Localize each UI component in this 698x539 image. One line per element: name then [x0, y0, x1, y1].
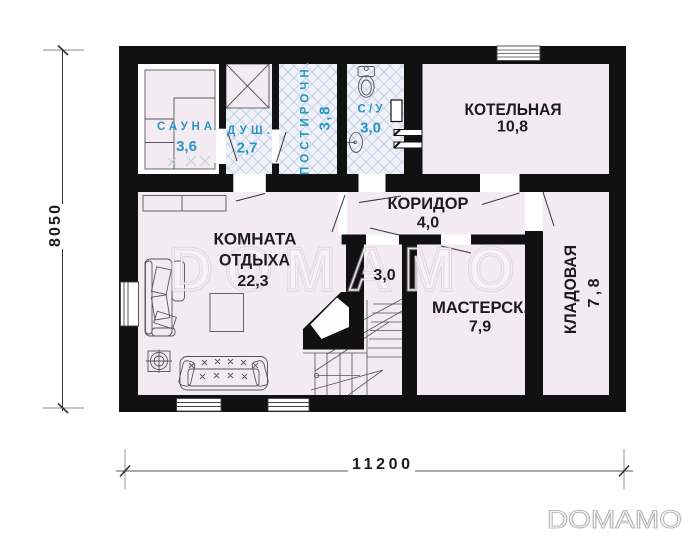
svg-text:7,9: 7,9	[469, 319, 491, 336]
svg-text:4,0: 4,0	[417, 215, 439, 232]
svg-text:КОРИДОР: КОРИДОР	[388, 194, 469, 213]
svg-text:КОТЕЛЬНАЯ: КОТЕЛЬНАЯ	[465, 100, 562, 119]
svg-text:3,0: 3,0	[360, 120, 381, 137]
svg-text:3,8: 3,8	[317, 107, 334, 131]
svg-text:3,0: 3,0	[373, 267, 395, 284]
svg-text:С/У: С/У	[358, 104, 384, 116]
svg-text:22,3: 22,3	[237, 273, 268, 290]
svg-text:2,7: 2,7	[237, 140, 258, 157]
svg-text:10,8: 10,8	[497, 119, 528, 136]
svg-text:7,8: 7,8	[586, 278, 603, 307]
svg-text:3,6: 3,6	[176, 138, 197, 155]
svg-text:ОТДЫХА: ОТДЫХА	[219, 251, 290, 270]
svg-text:DOMAMO: DOMAMO	[547, 506, 682, 534]
svg-text:КЛАДОВАЯ: КЛАДОВАЯ	[561, 245, 580, 334]
svg-text:КОМНАТА: КОМНАТА	[214, 230, 297, 249]
svg-text:МАСТЕРСК.: МАСТЕРСК.	[432, 298, 528, 317]
